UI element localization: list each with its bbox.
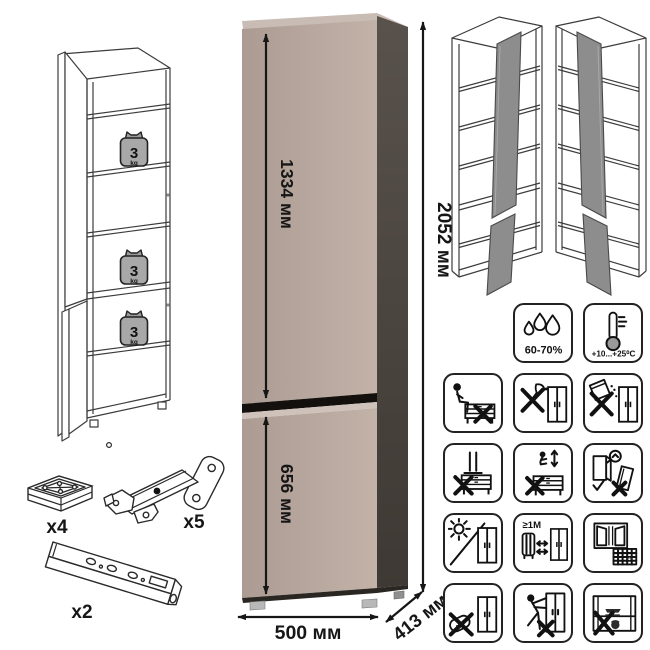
no-sharp-tools-icon [513, 373, 573, 433]
no-sitting-icon [443, 373, 503, 433]
no-overloading-icon [583, 583, 643, 643]
left-hinged-view [452, 17, 542, 295]
foot-hardware [28, 476, 92, 511]
no-standing-icon [443, 443, 503, 503]
foot-qty-label: x4 [46, 517, 68, 538]
rail-qty-label: x2 [71, 602, 92, 623]
humidity-range-label: 60-70% [524, 344, 562, 356]
open-door-views [452, 17, 646, 295]
hinge-hardware [104, 443, 227, 523]
temperature-icon: +10...+25⁰C [583, 303, 643, 363]
heater-distance-label: ≥1M [522, 520, 541, 531]
no-abrasives-icon [583, 373, 643, 433]
ventilation-icon: 21 [583, 513, 643, 573]
no-direct-sunlight-icon [443, 513, 503, 573]
upper-door-dim-label: 1334 мм [277, 159, 297, 229]
humidity-drops-icon: 60-70% [518, 308, 569, 359]
lower-door-dim-label: 656 мм [277, 464, 297, 524]
total-height-dim-label: 2052 мм [433, 202, 454, 278]
width-dim-label: 500 мм [275, 622, 342, 644]
humidity-icon: 60-70% [513, 303, 573, 363]
heater-distance-icon: ≥1M [513, 513, 573, 573]
no-jumping-icon [513, 443, 573, 503]
anchor-to-wall-icon [583, 443, 643, 503]
thermometer-icon: +10...+25⁰C [588, 308, 639, 359]
temperature-range-label: +10...+25⁰C [591, 349, 635, 358]
ventilation-days-label: 21 [627, 556, 632, 561]
rail-hardware [45, 542, 183, 607]
furniture-infographic: 3 kg [0, 0, 650, 650]
right-hinged-view [556, 17, 646, 295]
no-wet-cleaning-icon [443, 583, 503, 643]
hinge-qty-label: x5 [183, 512, 205, 533]
open-cabinet-diagram [58, 48, 170, 441]
no-dragging-icon [513, 583, 573, 643]
